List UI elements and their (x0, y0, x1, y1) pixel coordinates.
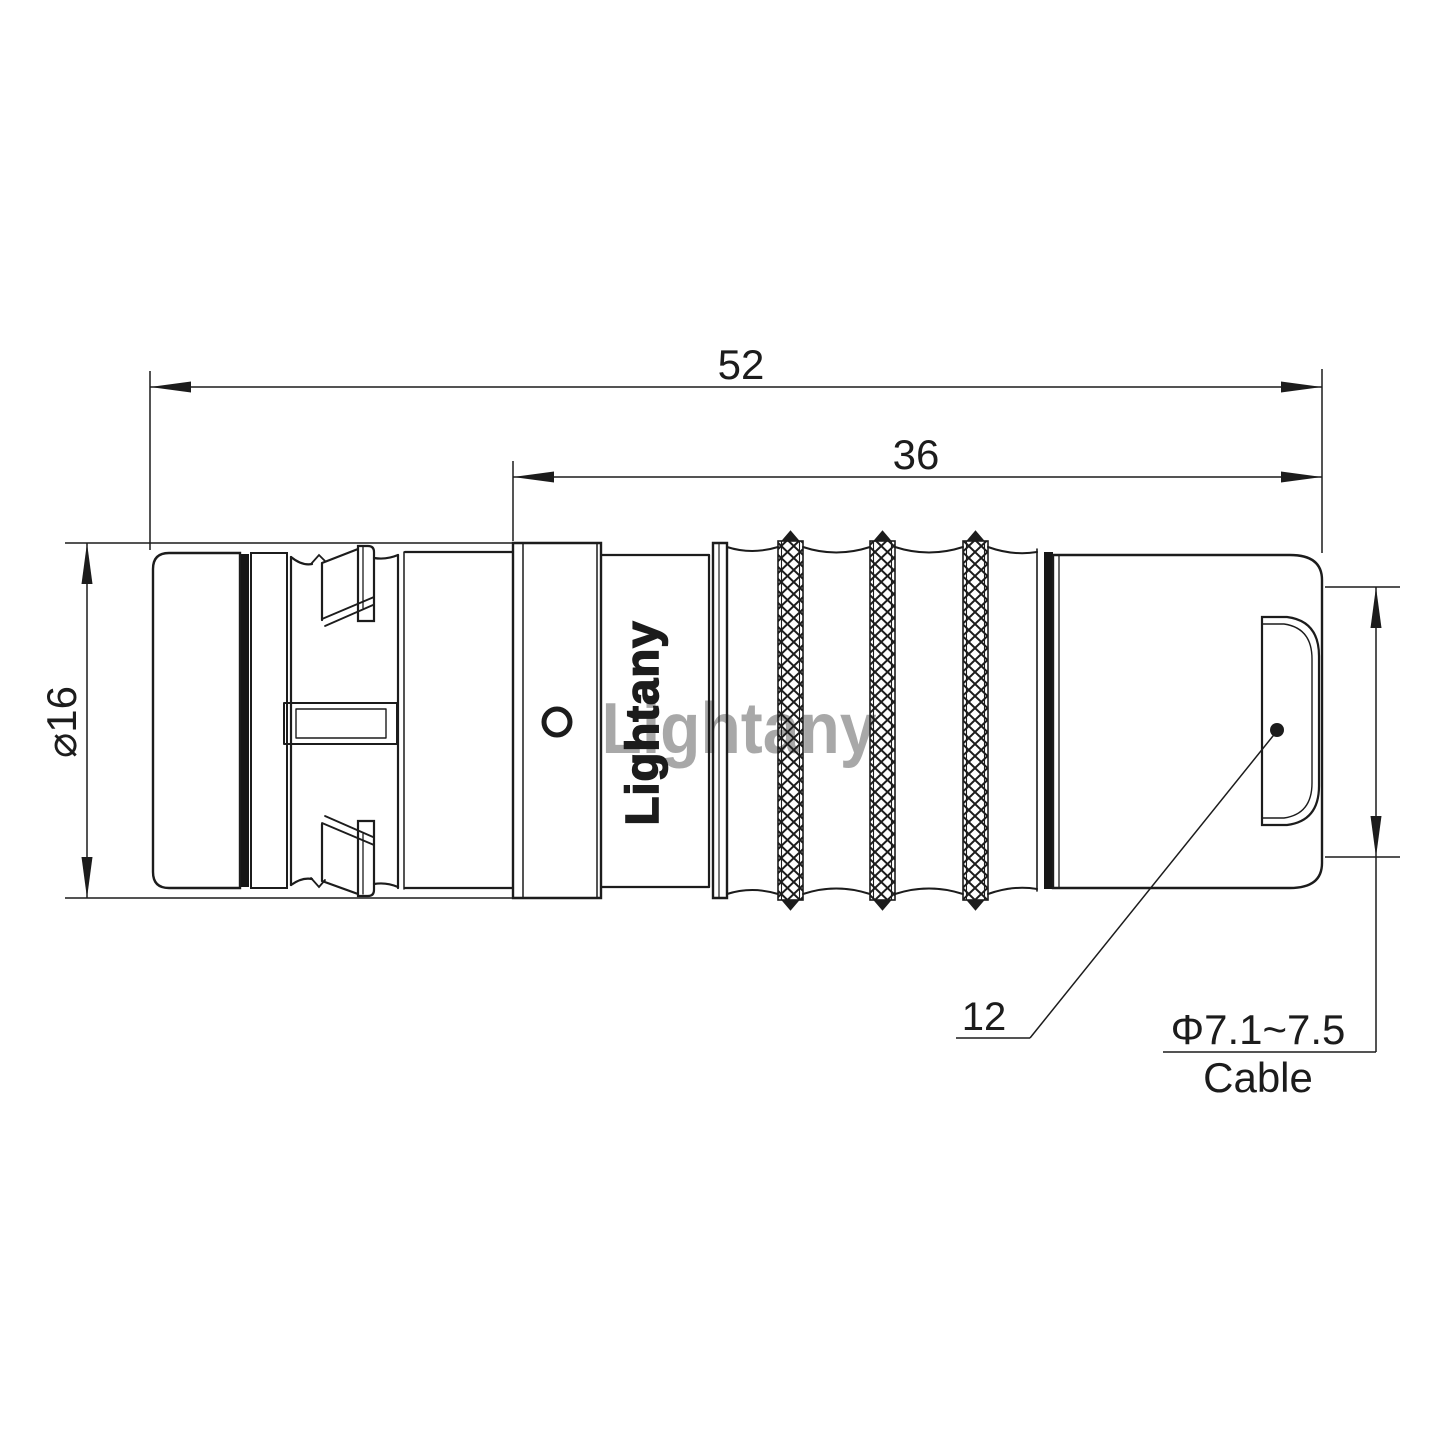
dimension-rear-length: 36 (513, 431, 1322, 541)
dim-36-label: 36 (893, 431, 940, 478)
dimension-shell-diameter: ⌀16 (38, 543, 513, 898)
cable-diameter-label: Φ7.1~7.5 (1171, 1006, 1346, 1053)
dimension-cable-diameter: Φ7.1~7.5 Cable (1163, 587, 1400, 1101)
front-shell (153, 553, 287, 888)
latch-section (284, 546, 404, 896)
dim-12-label: 12 (962, 995, 1007, 1039)
cable-word-label: Cable (1203, 1054, 1313, 1101)
dim-16-label: ⌀16 (38, 686, 85, 758)
collar-hole (544, 709, 570, 735)
knurl-band-3 (963, 531, 988, 910)
knurl-band-1 (778, 531, 803, 910)
barrel-engraving-text: Lightany (616, 621, 668, 826)
mid-barrel (405, 552, 513, 888)
lower-latch-tab (311, 816, 374, 896)
front-shell-dark-ring (241, 554, 249, 887)
callout-bushing: 12 (956, 723, 1284, 1039)
dimension-overall-length: 52 (150, 341, 1322, 553)
knurl-end-dark-ring (1044, 552, 1053, 889)
connector-technical-drawing: Lightany (0, 0, 1440, 1440)
knurl-band-2 (870, 531, 895, 910)
leader-dot (1270, 723, 1284, 737)
end-nut (1053, 555, 1322, 888)
cable-bushing (1262, 617, 1319, 825)
collar (513, 543, 601, 898)
drawing-canvas: Lightany (0, 0, 1440, 1440)
dim-52-label: 52 (718, 341, 765, 388)
upper-latch-tab (311, 546, 374, 626)
latch-slot (284, 703, 397, 744)
